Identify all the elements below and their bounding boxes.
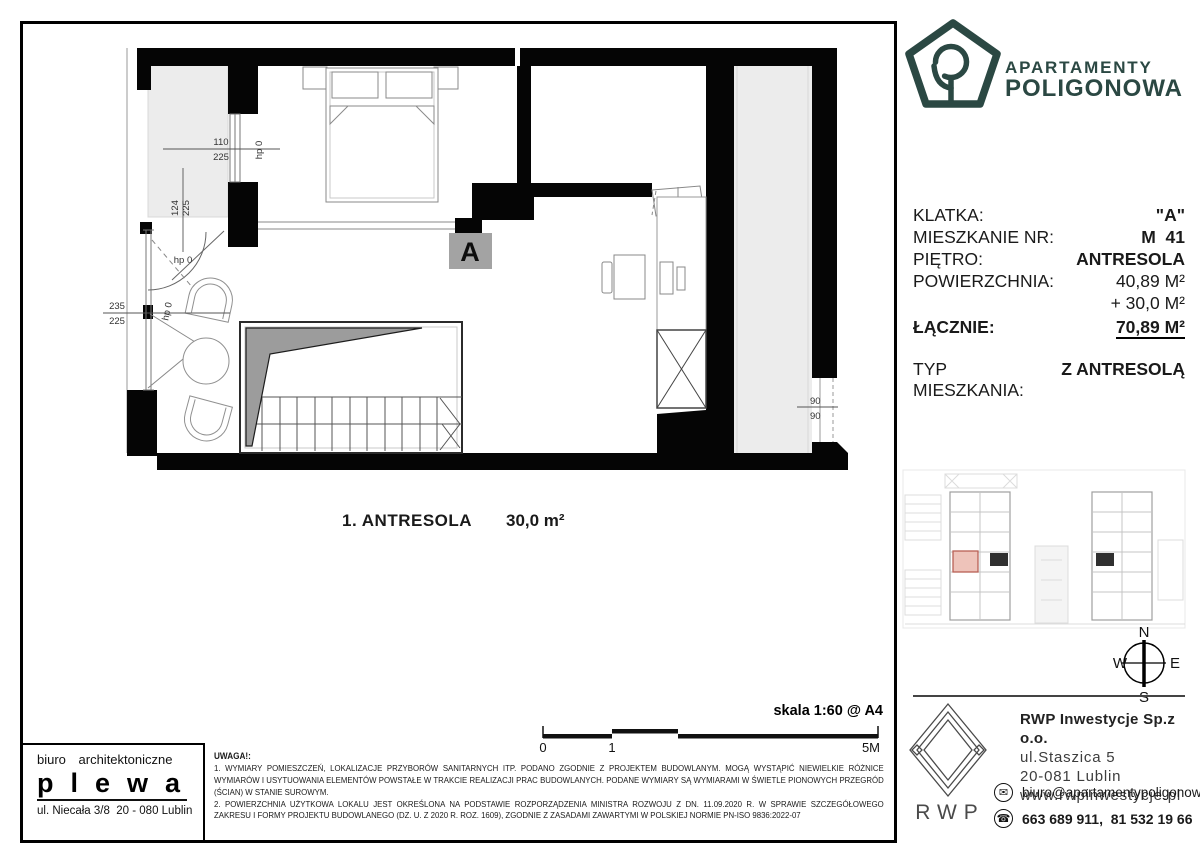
staircase (240, 322, 462, 453)
dim-90a: 90 (810, 396, 821, 407)
armchair (185, 274, 236, 322)
corridor-area (734, 66, 812, 453)
plan-sheet-page: 110 225 hp 0 124 225 hp 0 235 225 hp 0 9… (0, 0, 1200, 849)
developer-email: biuro@apartamentypoligonowa.pl (1022, 785, 1200, 800)
panel-divider (913, 695, 1185, 697)
phone-row: ☎ 663 689 911, 81 532 19 66 (994, 809, 1193, 828)
info-label: PIĘTRO: (913, 249, 983, 271)
terrace-window (230, 114, 240, 182)
compass-s: S (1139, 689, 1149, 706)
round-table (183, 338, 229, 384)
info-label: MIESZKANIE NR: (913, 227, 1054, 249)
notes-title: UWAGA!: (214, 751, 884, 761)
architect-address: ul. Niecała 3/8 20 - 080 Lublin (37, 805, 203, 817)
dim-225: 225 (213, 152, 229, 163)
dim-235: 235 (109, 301, 125, 312)
info-row-pietro: PIĘTRO:ANTRESOLA (913, 249, 1185, 271)
developer-phones: 663 689 911, 81 532 19 66 (1022, 811, 1193, 827)
notes-line-2: 2. POWIERZCHNIA UŻYTKOWA LOKALU JEST OKR… (214, 799, 884, 823)
rwp-logo-text: RWP (908, 801, 992, 825)
rwp-logo (910, 704, 986, 796)
info-value: ANTRESOLA (1076, 249, 1185, 271)
wardrobe-strip (657, 197, 706, 408)
armchair (180, 396, 233, 446)
lounge-furniture (180, 274, 237, 446)
info-row-lacznie: ŁĄCZNIE:70,89 M² (913, 317, 1185, 339)
info-value: M 41 (1141, 227, 1185, 249)
info-value: 40,89 M² (1116, 271, 1185, 293)
info-row-powierzchnia-2: + 30,0 M² (913, 293, 1185, 315)
compass-e: E (1170, 655, 1180, 672)
dim-110: 110 (213, 137, 228, 148)
email-row: ✉ biuro@apartamentypoligonowa.pl (994, 783, 1200, 802)
architect-name: plewa (37, 767, 187, 801)
hp-label: hp 0 (174, 255, 193, 266)
dim-225c: 225 (109, 316, 125, 327)
dim-90b: 90 (810, 411, 821, 422)
info-label: TYP MIESZKANIA: (913, 359, 1061, 381)
dim-124: 124 (170, 200, 181, 216)
highlighted-unit (953, 551, 978, 572)
area-value: 30,0 m² (506, 511, 565, 530)
notes-block: UWAGA!: 1. WYMIARY POMIESZCZEŃ, LOKALIZA… (214, 751, 884, 822)
developer-company: RWP Inwestycje Sp.z o.o. (1020, 710, 1200, 748)
site-plan (903, 470, 1185, 628)
info-row-mieszkanie: MIESZKANIE NR:M 41 (913, 227, 1185, 249)
email-icon: ✉ (994, 783, 1013, 802)
brand-logo (909, 23, 997, 104)
architect-type: biuro architektoniczne (37, 752, 203, 767)
info-value: "A" (1156, 205, 1185, 227)
info-row-powierzchnia: POWIERZCHNIA:40,89 M² (913, 271, 1185, 293)
floor-plan: 110 225 hp 0 124 225 hp 0 235 225 hp 0 9… (103, 48, 848, 530)
hall-partition (258, 222, 455, 229)
bed (303, 67, 458, 202)
developer-street: ul.Staszica 5 (1020, 748, 1200, 767)
phone-icon: ☎ (994, 809, 1013, 828)
info-value: Z ANTRESOLĄ (1061, 359, 1185, 381)
info-value: 70,89 M² (1116, 317, 1185, 339)
right-opening (820, 378, 833, 442)
info-label: POWIERZCHNIA: (913, 271, 1054, 293)
compass-w: W (1113, 655, 1128, 672)
scale-label: skala 1:60 @ A4 (700, 703, 883, 719)
hp-label: hp 0 (160, 301, 175, 321)
dim-225b: 225 (181, 200, 192, 216)
notes-line-1: 1. WYMIARY POMIESZCZEŃ, LOKALIZACJE PRZY… (214, 763, 884, 799)
compass-rose: N E S W (1113, 624, 1180, 706)
info-label: KLATKA: (913, 205, 984, 227)
info-label: ŁĄCZNIE: (913, 317, 995, 339)
info-row-typ: TYP MIESZKANIA:Z ANTRESOLĄ (913, 359, 1185, 381)
info-value: + 30,0 M² (1111, 293, 1185, 315)
compass-n: N (1139, 624, 1150, 641)
room-label: A (460, 237, 480, 267)
info-row-klatka: KLATKA:"A" (913, 205, 1185, 227)
building-b (1092, 492, 1152, 620)
brand-name-line2: POLIGONOWA (1005, 75, 1183, 103)
desk (602, 255, 685, 299)
hp-label: hp 0 (254, 141, 265, 160)
area-name: 1. ANTRESOLA (342, 511, 472, 530)
architect-block: biuro architektoniczne plewa ul. Niecała… (23, 743, 205, 840)
